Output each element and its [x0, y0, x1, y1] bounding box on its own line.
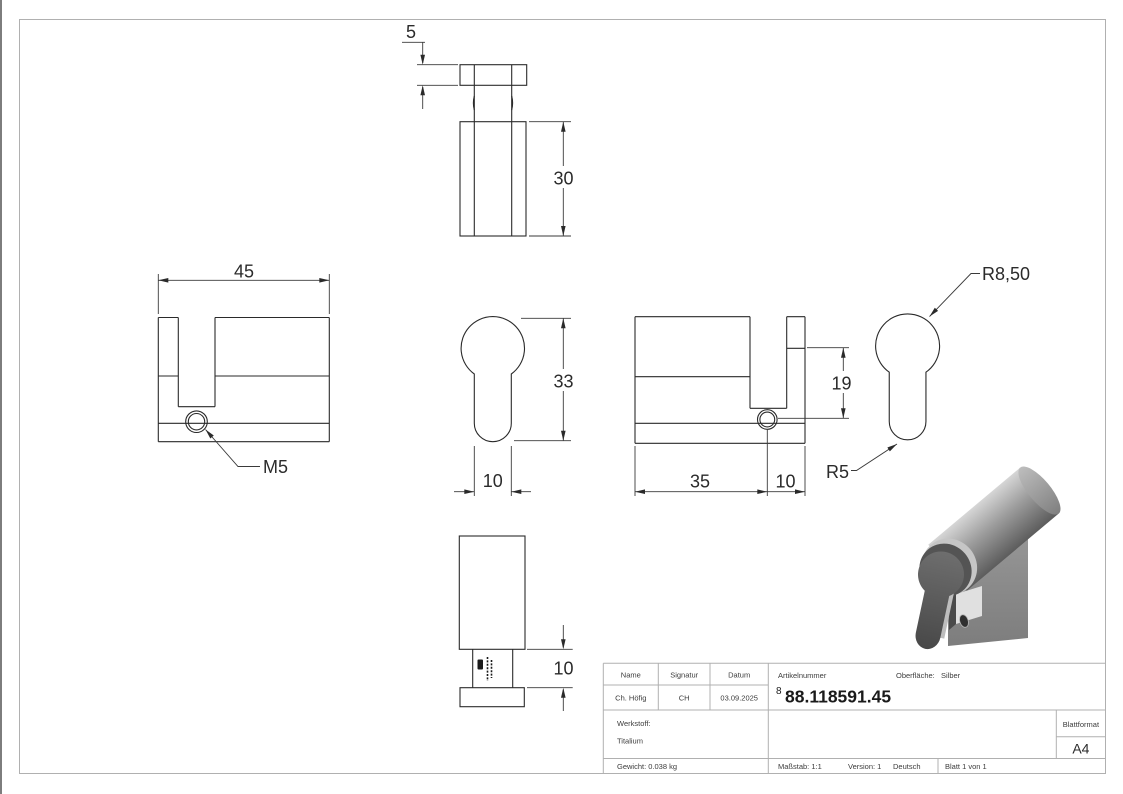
- dim-label-19: 19: [831, 374, 851, 394]
- view-top: [460, 65, 527, 236]
- titleblock-version: Version: 1: [848, 762, 881, 771]
- titleblock-massstab: Maßstab: 1:1: [778, 762, 822, 771]
- titleblock-name-value: Ch. Höfig: [615, 694, 646, 703]
- leader-m5: M5: [204, 428, 288, 477]
- titleblock-artikelnummer-value: 88.118591.45: [785, 687, 891, 707]
- titleblock-oberflaeche-label: Oberfläche:: [896, 671, 935, 680]
- titleblock-blatt: Blatt 1 von 1: [945, 762, 987, 771]
- bottom-view-cam: [460, 688, 524, 707]
- titleblock-sprache: Deutsch: [893, 762, 921, 771]
- right-view-m5-hole-inner: [760, 412, 775, 427]
- titleblock-signatur-value: CH: [679, 694, 690, 703]
- label-m5: M5: [263, 457, 288, 477]
- view-profile-outline: [876, 314, 940, 440]
- left-view-m5-hole-outer: [186, 411, 208, 433]
- view-bottom: [459, 536, 525, 707]
- title-block-grid: [603, 663, 1105, 773]
- dim-45: 45: [158, 262, 329, 315]
- drawing-sheet: 5 30 45 M5: [0, 0, 1123, 794]
- dim-10-bottom: 10: [527, 625, 574, 711]
- dim-5: 5: [402, 22, 458, 109]
- top-view-cam-bar: [460, 65, 527, 86]
- dim-label-30: 30: [553, 169, 573, 189]
- dim-label-10-front: 10: [483, 471, 503, 491]
- leader-r850: R8,50: [928, 264, 1030, 318]
- titleblock-artikelnummer-label: Artikelnummer: [778, 671, 827, 680]
- leader-r5: R5: [826, 442, 898, 482]
- titleblock-werkstoff-label: Werkstoff:: [617, 719, 650, 728]
- bottom-view-body: [459, 536, 525, 649]
- render-3d: [903, 461, 1067, 654]
- titleblock-blattformat-label: Blattformat: [1063, 720, 1100, 729]
- titleblock-header-signatur: Signatur: [670, 671, 698, 680]
- technical-drawing: 5 30 45 M5: [0, 0, 1123, 794]
- top-view-body: [460, 122, 526, 236]
- window-left-edge: [0, 0, 2, 794]
- titleblock-header-name: Name: [621, 671, 641, 680]
- left-view-m5-hole-inner: [188, 414, 204, 430]
- dim-label-33: 33: [553, 372, 573, 392]
- titleblock-oberflaeche-value: Silber: [941, 671, 961, 680]
- dim-19: 19: [778, 348, 855, 419]
- titleblock-datum-value: 03.09.2025: [720, 694, 758, 703]
- titleblock-blattformat-value: A4: [1072, 741, 1089, 757]
- view-side-left: [158, 318, 329, 442]
- stem-engraving: [478, 657, 492, 681]
- dim-30: 30: [529, 122, 577, 236]
- label-r850: R8,50: [982, 264, 1030, 284]
- keyhole-profile-outline: [876, 314, 940, 440]
- dim-label-45: 45: [234, 262, 254, 282]
- titleblock-header-datum: Datum: [728, 671, 750, 680]
- dim-label-35: 35: [690, 472, 710, 492]
- titleblock-gewicht: Gewicht: 0.038 kg: [617, 762, 677, 771]
- titleblock-werkstoff-value: Titalium: [617, 737, 643, 746]
- dim-33: 33: [514, 318, 577, 440]
- dim-label-10-right: 10: [775, 472, 795, 492]
- dim-label-10-bottom: 10: [553, 659, 573, 679]
- dim-10-front: 10: [454, 446, 531, 496]
- front-profile-outline: [461, 317, 524, 442]
- view-side-right: [635, 317, 805, 444]
- dim-35-10: 35 10: [635, 429, 805, 496]
- dim-label-5: 5: [406, 22, 416, 42]
- view-front-profile: [461, 317, 524, 442]
- titleblock-artikelnummer-sup: 8: [776, 686, 782, 697]
- label-r5: R5: [826, 462, 849, 482]
- title-block: Name Signatur Datum Ch. Höfig CH 03.09.2…: [603, 663, 1105, 773]
